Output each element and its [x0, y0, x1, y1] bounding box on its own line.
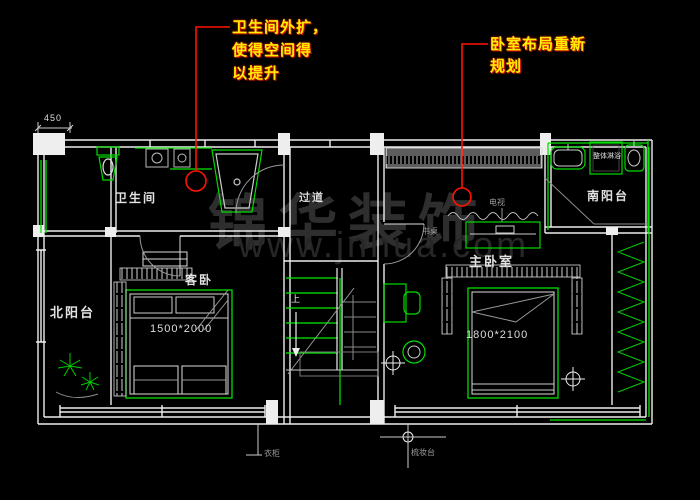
note1-line2: 使得空间得 [232, 43, 312, 58]
bathroom-sinks [146, 149, 190, 167]
master-bed-rug-hatch [442, 265, 582, 334]
room-label-guest-bedroom: 客卧 [185, 274, 213, 286]
stairs [286, 268, 378, 405]
label-dressing-table: 梳妆台 [411, 449, 435, 457]
label-wardrobe: 衣柜 [264, 450, 280, 458]
desk-chair [384, 284, 420, 322]
dim-corner-offset: 450 [44, 114, 62, 123]
room-label-south-balcony: 南阳台 [587, 190, 629, 202]
label-shower-cabin: 整体淋浴 [593, 153, 621, 160]
wash-basin [625, 141, 644, 171]
floor-plan-drawing [0, 0, 700, 500]
label-tv-stand: 电视 [489, 199, 505, 207]
curtain-zigzag [618, 242, 644, 392]
walls [36, 140, 652, 424]
curtain-wave [448, 213, 538, 220]
room-label-north-balcony: 北阳台 [50, 306, 95, 319]
note2-line2: 规划 [490, 59, 522, 74]
note1-line3: 以提升 [232, 66, 280, 81]
red-circle-bathroom [186, 171, 206, 191]
dim-guest-bed: 1500*2000 [150, 324, 212, 335]
master-bed [468, 288, 558, 398]
leader-wardrobe [246, 424, 262, 455]
dim-450-lines [35, 122, 73, 133]
plant-icon [56, 353, 99, 398]
leader-dressing-table [380, 424, 446, 468]
wardrobe-hatch [386, 148, 542, 168]
room-label-bathroom: 卫生间 [115, 192, 157, 204]
guest-bed [126, 290, 232, 398]
note2-line1: 卧室布局重新 [490, 37, 586, 52]
red-circle-bedroom [453, 188, 471, 206]
dim-master-bed: 1800*2100 [466, 330, 528, 341]
room-label-master-bedroom: 主卧室 [469, 255, 514, 268]
stool [403, 341, 425, 363]
tv-cabinet [466, 208, 540, 248]
cad-floorplan-screenshot: 锦华装饰 www.jnhua.com [0, 0, 700, 500]
label-stairs-up: 上 [291, 295, 300, 304]
bathtub [551, 144, 585, 169]
label-desk: 书桌 [422, 228, 438, 236]
note1-line1: 卫生间外扩， [232, 20, 328, 35]
room-label-corridor: 过道 [299, 193, 325, 204]
